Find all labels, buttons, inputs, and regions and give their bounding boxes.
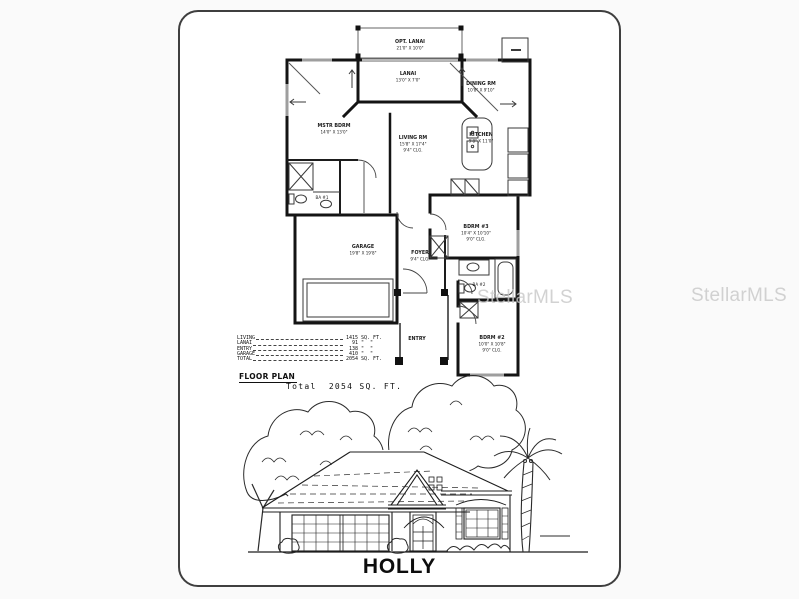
area-label: TOTAL [237,357,252,362]
room-dims-bdrm2: 10'0" X 10'8" [478,342,505,347]
floor-plan-drawing: OPT. LANAI 21'0" X 10'0" LANAI 13'0" X 7… [0,0,799,599]
room-label-bdrm2: BDRM #2 [479,335,504,341]
room-label-garage: GARAGE [352,244,374,250]
room-label-foyer: FOYER [411,250,429,256]
watermark-right: StellarMLS [691,285,787,307]
room-dims-garage: 19'8" X 19'8" [349,251,376,256]
room-label-entry: ENTRY [408,336,426,342]
plan-windows [287,60,518,375]
leader-dashes [253,360,343,361]
total-sqft-line: Total 2054 SQ. FT. [286,382,402,391]
room-dims-bdrm3: 10'4" X 10'10" [461,231,491,236]
room-clg-foyer: 9'4" CLG. [410,257,429,262]
room-label-ba1: BA #1 [316,195,329,200]
room-clg-living: 9'4" CLG. [403,148,422,153]
room-dims-mstr: 14'0" X 13'0" [320,130,347,135]
room-label-lanai: LANAI [400,71,416,77]
room-label-mstr: MSTR BDRM [318,123,351,129]
floor-plan-heading: FLOOR PLAN [239,372,297,383]
watermark-left: StellarMLS [477,287,573,309]
model-name-title: HOLLY [178,555,621,579]
room-dims-opt-lanai: 21'0" X 10'0" [396,46,423,51]
room-label-bdrm3: BDRM #3 [463,224,488,230]
leader-dashes [256,339,343,340]
room-label-dining: DINING RM [466,81,496,87]
mls-floorplan-image: { "watermark": { "text": "StellarMLS" },… [0,0,799,599]
room-clg-bdrm2: 9'0" CLG. [482,348,501,353]
leader-dashes [256,355,343,356]
area-value: 2054 [344,357,358,362]
area-row-total: TOTAL 2054 SQ. FT. [237,357,385,362]
room-dims-living: 15'8" X 17'4" [399,142,426,147]
leader-dashes [253,345,343,346]
room-dims-lanai: 13'0" X 7'0" [396,78,421,83]
room-label-kitchen: KITCHEN [469,132,493,138]
room-clg-bdrm3: 9'0" CLG. [466,237,485,242]
room-dims-kitchen: 9'8" X 11'0" [469,139,494,144]
room-label-opt-lanai: OPT. LANAI [395,39,425,45]
area-table: LIVING 1415 SQ. FT. LANAI 91 " " ENTRY 1… [237,336,385,362]
area-unit: SQ. FT. [358,357,385,362]
room-dims-dining: 10'8" X 9'10" [467,88,494,93]
leader-dashes [253,350,343,351]
room-label-living: LIVING RM [399,135,428,141]
